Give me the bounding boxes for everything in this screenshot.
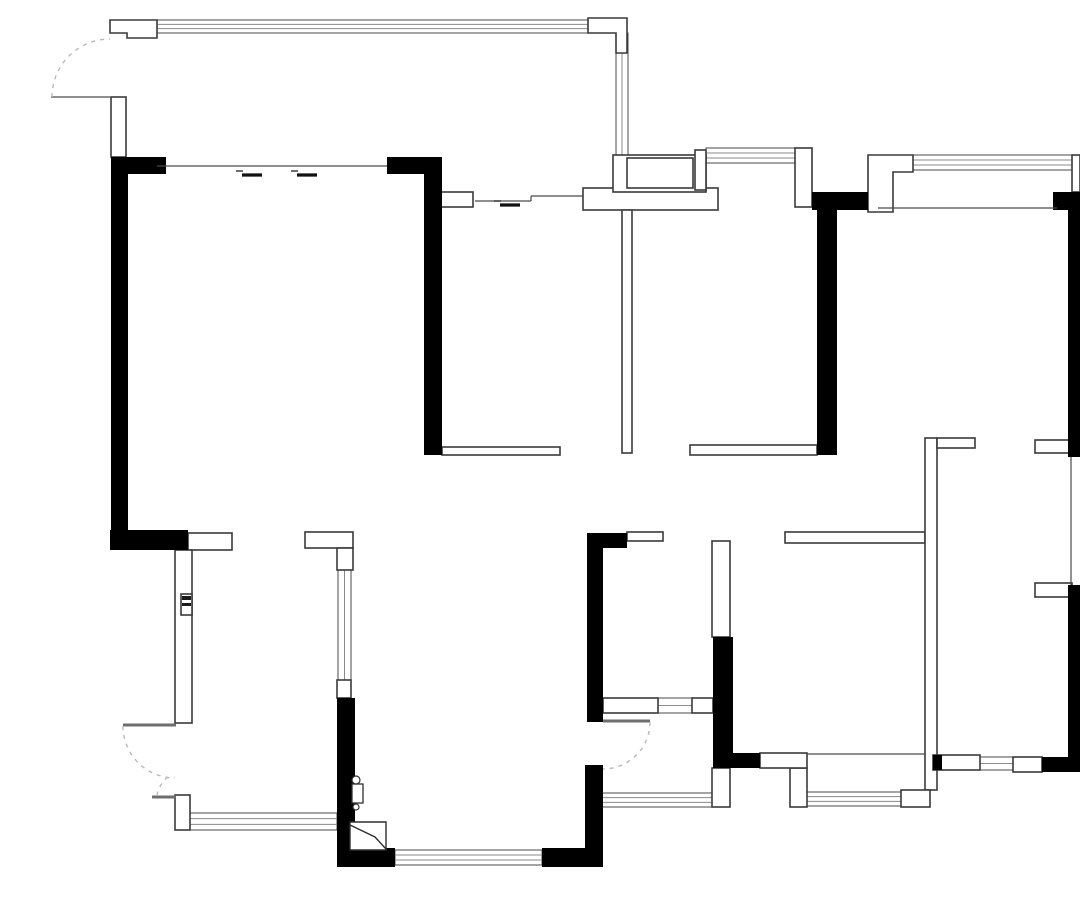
wall-post-p-lpost-leg <box>337 548 353 570</box>
door-arc-arc-entry-lower <box>123 726 175 778</box>
sym-lock-band-1 <box>182 596 191 600</box>
window-win-bottom-entry <box>190 813 337 830</box>
sym-folddoor-frame <box>350 822 386 850</box>
wall-post-p-box-901 <box>901 790 930 807</box>
wall-post-p-post-795 <box>795 148 812 207</box>
wall-post-p-post-712-upper <box>712 541 730 637</box>
wall-post-p-topleft-window-post <box>110 20 157 38</box>
window-win-bath-bottom-r <box>807 792 901 806</box>
wall-post-p-stub-188 <box>188 533 232 550</box>
wall-w-right-upper-v <box>1068 210 1080 457</box>
wall-post-p-door-post-bl <box>175 795 190 830</box>
sym-hinge-circle-top <box>352 776 360 784</box>
door-arc-arc-entry-top <box>52 39 110 97</box>
wall-w-br-bottom-left-bit <box>933 755 942 770</box>
wall-w-hall-corner <box>587 533 627 548</box>
floorplan-svg <box>0 0 1080 898</box>
wall-w-hall-v <box>587 548 603 722</box>
window-win-top-706 <box>706 148 795 163</box>
wall-post-p-stub-937 <box>937 438 975 448</box>
wall-post-p-post-695 <box>695 150 706 190</box>
wall-post-p-stub-627 <box>627 532 663 541</box>
wall-post-p-topright-window-post <box>868 155 913 212</box>
wall-w-bottom-left-h <box>337 848 395 867</box>
wall-w-topright-corner <box>1053 192 1080 210</box>
wall-w-br-bottom-corner <box>1042 757 1080 772</box>
wall-post-p-bed1-bar-left <box>442 447 560 455</box>
window-win-bath-bottom-l <box>600 793 712 807</box>
wall-w-midright-v <box>817 192 837 455</box>
wall-w-left-bottom-h <box>110 530 188 550</box>
wall-post-p-post-790 <box>790 768 807 807</box>
wall-post-p-thin-622 <box>622 210 632 453</box>
wall-post-p-bar-760 <box>760 753 807 768</box>
wall-post-p-junction-niche <box>627 158 693 188</box>
wall-post-p-post-712 <box>712 768 730 807</box>
wall-post-p-band-left <box>603 698 658 713</box>
window-win-bottom-living <box>395 850 542 865</box>
wall-w-kitchen-left-v <box>424 157 442 455</box>
wall-post-p-stub-1035-top <box>1035 440 1072 453</box>
door-arc-arc-entry-lower-ext <box>157 777 168 795</box>
wall-post-p-bed1-bar-right <box>690 445 817 455</box>
wall-post-p-stub-1035-bot <box>1035 583 1072 597</box>
wall-post-p-entry-post <box>111 97 126 157</box>
window-win-top-left <box>157 20 588 33</box>
wall-post-p-topcenter-window-post <box>588 18 627 53</box>
sym-lock-band-2 <box>182 603 191 606</box>
wall-w-right-lower-v <box>1068 585 1080 772</box>
wall-post-p-right-cap <box>1072 155 1080 192</box>
wall-w-bath-door-v <box>585 765 603 848</box>
wall-post-p-lpost-h <box>305 532 353 548</box>
wall-post-p-br-bottom-hollow-r <box>1013 757 1042 772</box>
floorplan-canvas <box>0 0 1080 898</box>
sym-hinge-plate <box>352 784 363 803</box>
wall-post-p-hall-south-bar <box>785 532 925 543</box>
wall-w-center-right-v <box>713 637 733 753</box>
wall-w-bottom-center-h <box>542 848 603 867</box>
sym-hinge-circle-bot <box>353 804 359 810</box>
wall-post-p-thin-925 <box>925 438 937 790</box>
wall-post-p-slider-block <box>441 192 473 207</box>
wall-post-p-post-337 <box>337 680 351 698</box>
wall-post-p-band-right <box>692 698 713 713</box>
wall-post-p-entry-thin-wall <box>175 550 192 723</box>
wall-w-left-v <box>111 157 128 530</box>
door-arc-arc-bath-door <box>603 722 650 769</box>
wall-w-center-right-h <box>713 753 760 768</box>
window-win-top-right <box>913 155 1075 170</box>
